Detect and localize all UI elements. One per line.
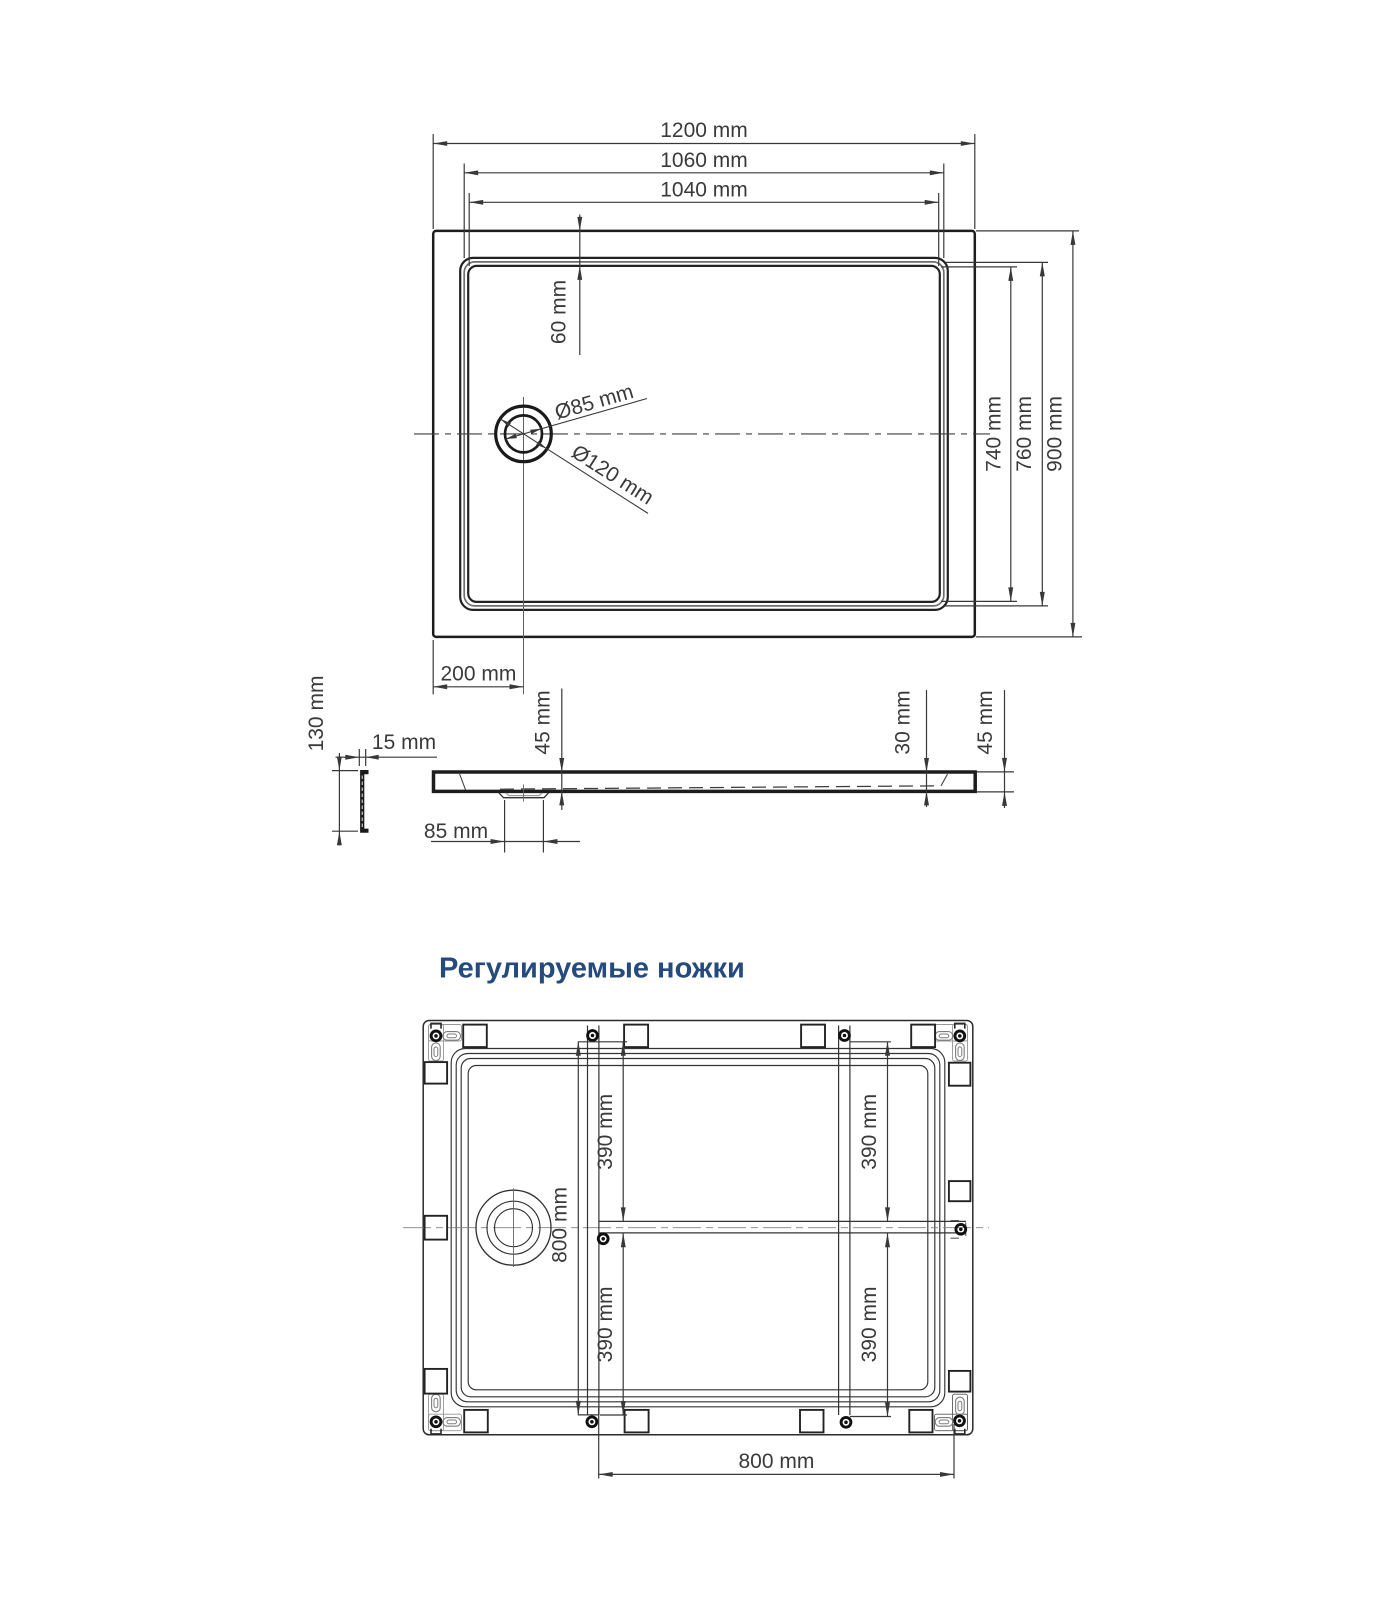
svg-text:45 mm: 45 mm: [974, 690, 997, 754]
svg-text:200 mm: 200 mm: [440, 662, 516, 685]
svg-text:800 mm: 800 mm: [549, 1187, 572, 1263]
svg-text:900 mm: 900 mm: [1044, 396, 1067, 472]
svg-text:Ø85 mm: Ø85 mm: [552, 380, 636, 424]
svg-text:15 mm: 15 mm: [372, 731, 436, 754]
svg-text:760 mm: 760 mm: [1013, 396, 1036, 472]
svg-text:130 mm: 130 mm: [305, 676, 328, 752]
svg-text:30 mm: 30 mm: [892, 690, 915, 754]
svg-text:Ø120 mm: Ø120 mm: [567, 440, 657, 509]
svg-text:1060 mm: 1060 mm: [660, 149, 748, 172]
svg-text:390 mm: 390 mm: [594, 1094, 617, 1170]
svg-text:740 mm: 740 mm: [983, 396, 1006, 472]
svg-text:Регулируемые ножки: Регулируемые ножки: [439, 953, 745, 985]
svg-text:800 mm: 800 mm: [738, 1450, 814, 1473]
svg-text:1040 mm: 1040 mm: [660, 178, 748, 201]
svg-text:390 mm: 390 mm: [858, 1094, 881, 1170]
svg-text:85 mm: 85 mm: [424, 820, 488, 843]
svg-text:45 mm: 45 mm: [532, 690, 555, 754]
svg-text:390 mm: 390 mm: [858, 1286, 881, 1362]
svg-text:1200 mm: 1200 mm: [660, 119, 748, 142]
svg-text:60 mm: 60 mm: [548, 280, 571, 344]
svg-text:390 mm: 390 mm: [594, 1286, 617, 1362]
